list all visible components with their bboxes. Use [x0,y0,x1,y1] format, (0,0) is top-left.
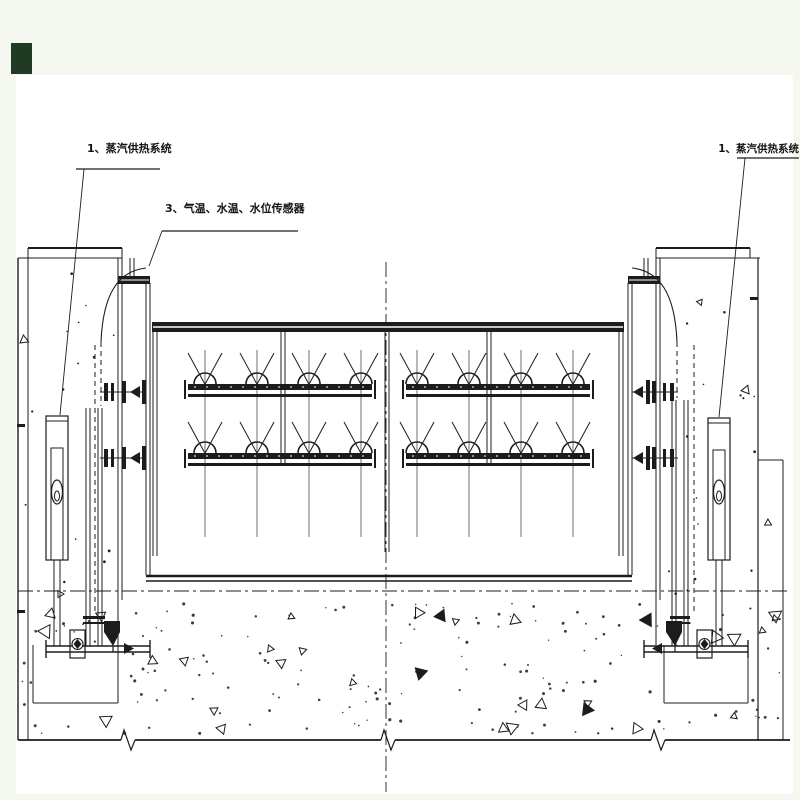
heating-pipe [188,463,372,466]
label-steam-right: 1、蒸汽供热系统 [718,142,799,155]
label-steam-left: 1、蒸汽供热系统 [87,141,172,155]
gauge-icon [52,480,63,504]
heating-pipe [188,394,372,397]
gate-steam-heating-section-drawing: 1、蒸汽供热系统 3、气温、水温、水位传感器 1、蒸汽供热系统 [0,0,800,800]
sheet-corner-mark [11,43,32,74]
label-sensors: 3、气温、水温、水位传感器 [165,201,306,215]
gauge-icon [714,480,725,504]
heating-pipe [406,463,590,466]
heating-pipe [406,394,590,397]
drawing-canvas: 1、蒸汽供热系统 3、气温、水温、水位传感器 1、蒸汽供热系统 [0,0,800,800]
